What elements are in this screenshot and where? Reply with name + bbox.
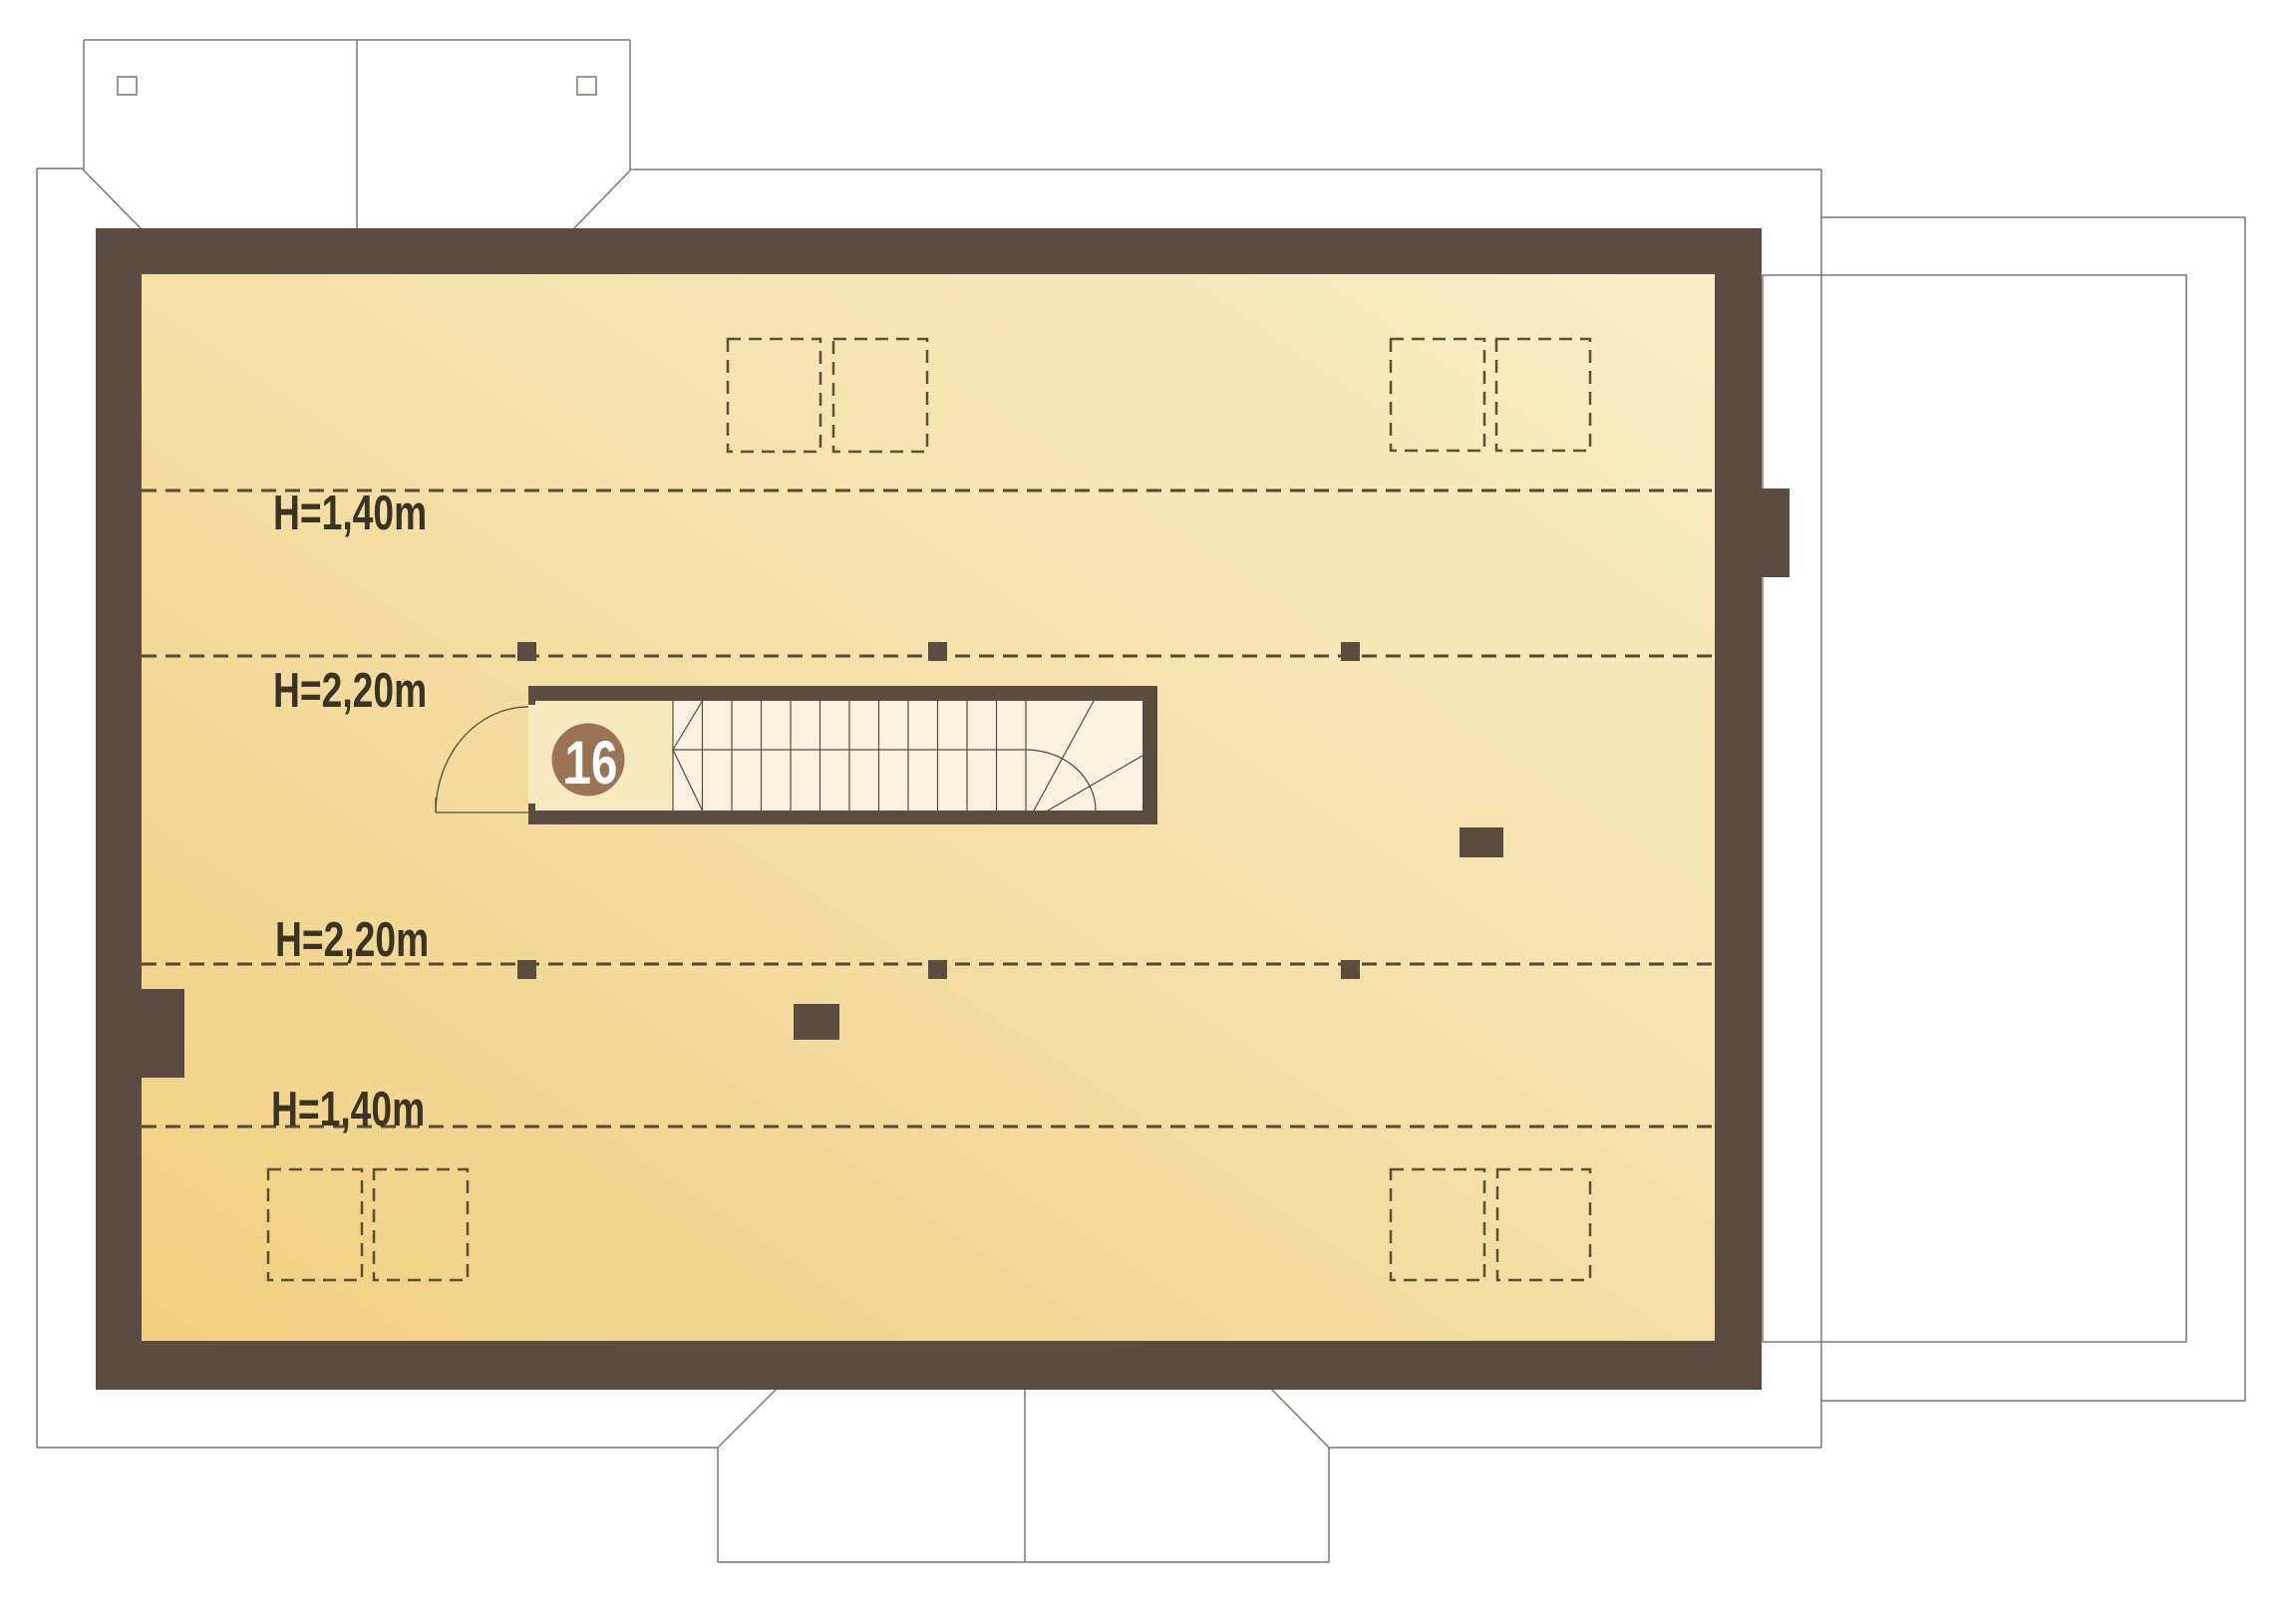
svg-text:H=1,40m: H=1,40m bbox=[273, 487, 427, 540]
svg-text:16: 16 bbox=[565, 728, 618, 797]
svg-text:H=2,20m: H=2,20m bbox=[275, 913, 429, 967]
svg-text:H=1,40m: H=1,40m bbox=[271, 1083, 425, 1137]
svg-text:H=2,20m: H=2,20m bbox=[273, 664, 427, 718]
